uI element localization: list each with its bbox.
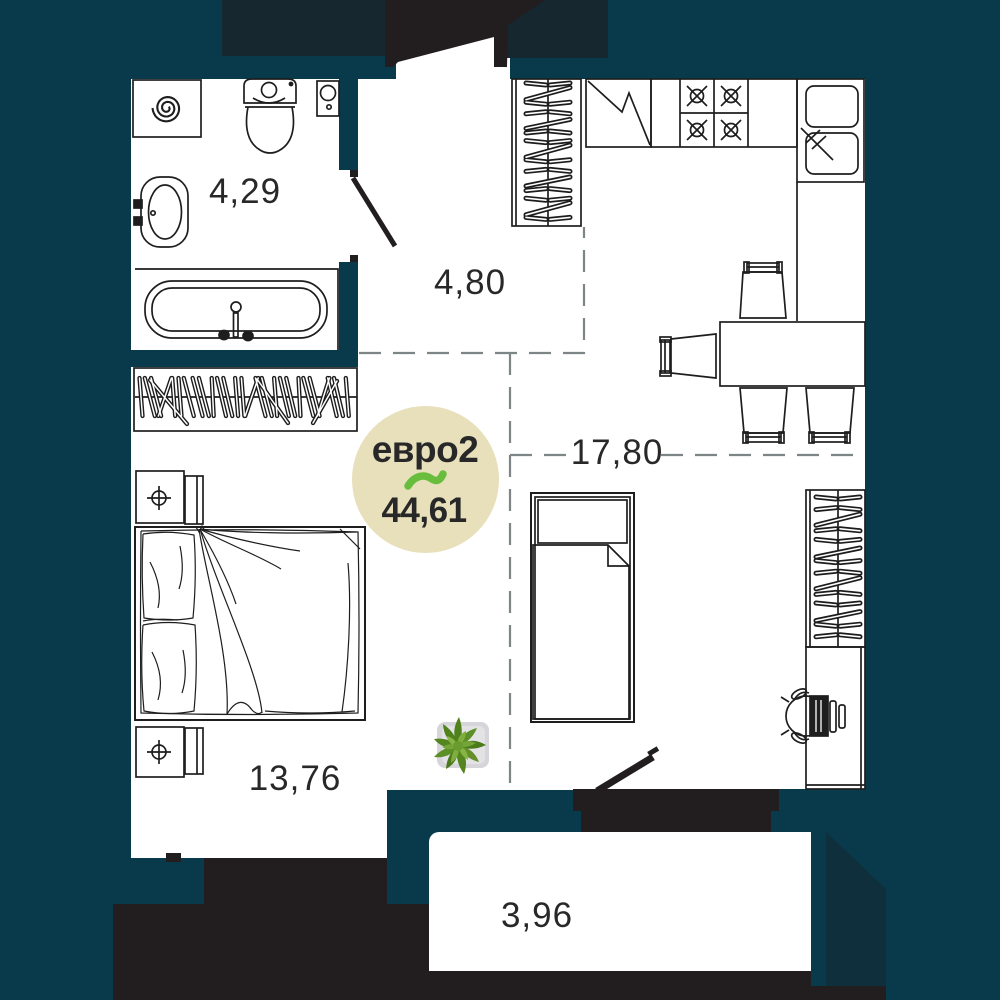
- svg-text:3,96: 3,96: [501, 896, 573, 935]
- svg-text:4,80: 4,80: [434, 263, 506, 302]
- svg-text:44,61: 44,61: [381, 491, 466, 530]
- svg-text:4,29: 4,29: [209, 172, 281, 211]
- svg-text:евро2: евро2: [372, 429, 479, 470]
- svg-text:17,80: 17,80: [571, 433, 664, 472]
- svg-text:13,76: 13,76: [249, 759, 342, 798]
